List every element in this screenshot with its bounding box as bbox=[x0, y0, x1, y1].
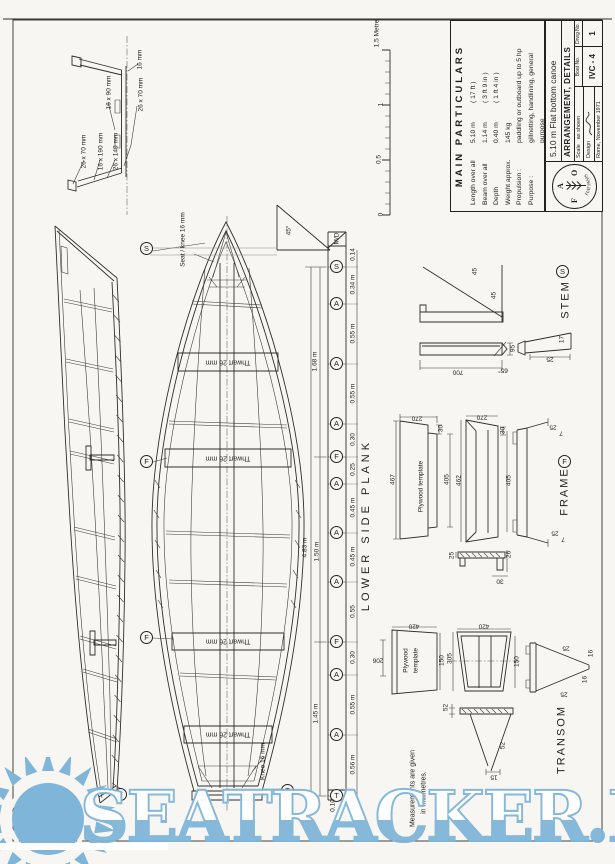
station-marker: A bbox=[330, 575, 343, 588]
drawing-sheet: 16 mm 26 x 70 mm 16 x 90 mm 26 x 70 mm 1… bbox=[0, 0, 615, 864]
table-row: Weight approx.145 kg bbox=[503, 27, 515, 205]
dim-label: 30 bbox=[499, 409, 508, 453]
station-marker: F bbox=[558, 455, 571, 468]
sheet-title: ARRANGEMENT, DETAILS bbox=[562, 21, 575, 161]
station-marker: A bbox=[330, 728, 343, 741]
angle-label: 45° bbox=[285, 209, 294, 253]
section-detail bbox=[68, 36, 138, 215]
dim-label: 26 x 140 mm bbox=[112, 130, 121, 174]
thwart-label: Thwart 26 mm bbox=[206, 455, 251, 462]
station-marker: F bbox=[140, 631, 153, 644]
table-row: Depth0.40 m( 1 ft 4 in ) bbox=[491, 27, 503, 205]
station-marker: S bbox=[556, 265, 569, 278]
spec-label: Length over all bbox=[468, 143, 480, 205]
drwg-no-cell: Drwg No. 1 bbox=[575, 21, 603, 47]
dim-label: 30 bbox=[437, 407, 446, 451]
dim-label: 26 bbox=[505, 533, 514, 577]
dim-label: 206 bbox=[373, 656, 384, 663]
boat-no-value: IVC - 4 bbox=[583, 47, 603, 86]
plywood-template-label: template bbox=[412, 639, 421, 683]
spec-alt: ( 3 ft 9 in ) bbox=[480, 27, 492, 103]
boat-no-cell: Boat No. IVC - 4 bbox=[575, 47, 603, 87]
transom-title: TRANSOM bbox=[558, 700, 567, 780]
place-date: Rome, November 1971 bbox=[595, 87, 603, 161]
main-particulars-title: MAIN PARTICULARS bbox=[454, 27, 465, 205]
dim-label: 16 x 90 mm bbox=[105, 71, 114, 115]
dim-label: 7 bbox=[561, 535, 565, 542]
dim-label: 26 x 70 mm bbox=[137, 73, 146, 117]
dim-label: 270 bbox=[477, 413, 488, 420]
dim-label: 7 bbox=[559, 429, 563, 436]
drwg-no-value: 1 bbox=[583, 21, 603, 46]
table-row: Length over all5.10 m( 17 ft ) bbox=[468, 27, 480, 205]
overall-dim-label: 1.50 m bbox=[313, 530, 322, 574]
dim-label: 30 bbox=[496, 577, 503, 584]
station-marker: A bbox=[330, 477, 343, 490]
dim-label: 467 bbox=[389, 458, 398, 502]
scale-tick-label: 0.5 bbox=[375, 138, 384, 182]
design-label: Design bbox=[584, 141, 594, 158]
lower-side-plank-title: LOWER SIDE PLANK bbox=[359, 415, 373, 635]
thwart-label: Thwart 26 mm bbox=[206, 638, 251, 645]
spec-label: Depth bbox=[491, 143, 503, 205]
dim-label: 0.45 m bbox=[349, 486, 358, 530]
scale-tick-label: 1.5 Metre bbox=[373, 12, 382, 56]
dim-label: 305 bbox=[446, 637, 455, 681]
thwart-label: Thwart 26 mm bbox=[206, 731, 251, 738]
dim-label: 0.55 m bbox=[349, 372, 358, 416]
md-label: M/D bbox=[333, 217, 342, 261]
fao-logo: F A O FIAT PANIS bbox=[552, 164, 597, 209]
spec-alt: ( 17 ft ) bbox=[468, 27, 480, 103]
scale-tick-label: 0 bbox=[377, 193, 386, 237]
main-particulars-table: MAIN PARTICULARS Length over all5.10 m( … bbox=[450, 20, 545, 212]
dim-label: 0.45 m bbox=[349, 535, 358, 579]
dim-label: 270 bbox=[412, 414, 423, 421]
boat-no-label: Boat No. bbox=[575, 47, 583, 86]
station-marker: F bbox=[330, 450, 343, 463]
units-note: Measurements are given bbox=[409, 744, 418, 834]
station-marker: F bbox=[330, 635, 343, 648]
dim-label: 25 bbox=[562, 644, 569, 651]
spec-value: 1.14 m bbox=[480, 103, 492, 143]
plywood-template-label: Plywood bbox=[402, 639, 411, 683]
dim-label: 26 x 70 mm bbox=[80, 130, 89, 174]
dim-label: 0.55 bbox=[349, 590, 358, 634]
scale-label: Scale bbox=[575, 144, 583, 158]
dim-label: 405 bbox=[443, 458, 452, 502]
dim-label: 25 bbox=[549, 423, 556, 430]
design-signature bbox=[584, 111, 594, 137]
dim-label: 0.34 m bbox=[349, 263, 358, 307]
drwg-no-label: Drwg No. bbox=[575, 21, 583, 46]
spec-label: Weight approx. bbox=[503, 143, 515, 205]
dim-label: 0.10 bbox=[329, 784, 338, 828]
title-block-left-column: Scaleas shown Design Rome, November 1971 bbox=[575, 87, 603, 161]
spec-alt: ( 1 ft 4 in ) bbox=[491, 27, 503, 103]
spec-label: Propulsion : bbox=[514, 143, 526, 205]
spec-alt bbox=[503, 27, 515, 103]
dim-label: 52 bbox=[442, 686, 451, 730]
plan-view bbox=[112, 216, 304, 812]
dim-label: 405 bbox=[505, 459, 514, 503]
knee-label: Knee 16 mm bbox=[259, 727, 268, 797]
table-row: Beam over all1.14 m( 3 ft 9 in ) bbox=[480, 27, 492, 205]
station-marker: F bbox=[140, 455, 153, 468]
dim-label: 25 bbox=[546, 355, 553, 362]
fao-motto: FIAT PANIS bbox=[582, 173, 591, 196]
dim-label: 0.55 m bbox=[349, 312, 358, 356]
title-block: F A O FIAT PANIS 5.10 m Flat bottom cano… bbox=[545, 20, 603, 212]
dim-label: 52 bbox=[499, 724, 508, 768]
dim-label: 420 bbox=[479, 622, 490, 629]
scale-tick-label: 1 bbox=[377, 83, 386, 127]
table-row: Propulsion :paddling or outboard up to 5… bbox=[514, 27, 526, 205]
station-marker: S bbox=[140, 242, 153, 255]
dim-label: 150 bbox=[513, 640, 522, 684]
dim-label: 25 bbox=[560, 690, 567, 697]
station-marker: T bbox=[114, 788, 127, 801]
station-marker: A bbox=[330, 668, 343, 681]
thwart-label: Thwart 26 mm bbox=[206, 359, 251, 366]
scale-bar-lines bbox=[382, 50, 390, 215]
plywood-template-label: Plywood template bbox=[417, 452, 426, 522]
station-marker: S bbox=[330, 260, 343, 273]
overall-dim-label: 1.45 m bbox=[312, 692, 321, 736]
spec-value: 0.40 m bbox=[491, 103, 503, 143]
dim-label: 45 bbox=[490, 274, 499, 318]
dim-label: 700 bbox=[453, 368, 464, 375]
spec-value: 5.10 m bbox=[468, 103, 480, 143]
dim-label: 0.55 m bbox=[349, 683, 358, 727]
dim-label: 16 bbox=[581, 658, 590, 702]
seat-knee-label: Seat / knee 16 mm bbox=[179, 205, 188, 275]
station-marker: A bbox=[330, 526, 343, 539]
spec-value: paddling or outboard up to 5 hp bbox=[514, 27, 526, 143]
overall-dim-label: 1.68 m bbox=[311, 340, 320, 384]
dim-label: 25 bbox=[551, 529, 558, 536]
svg-text:FIAT PANIS: FIAT PANIS bbox=[582, 173, 591, 196]
dim-label: 462 bbox=[455, 459, 464, 503]
dim-label: 16 x 190 mm bbox=[97, 130, 106, 174]
station-marker: A bbox=[330, 357, 343, 370]
overall-dim-label: 4.83 m bbox=[301, 526, 310, 570]
side-elevation bbox=[55, 226, 125, 803]
dim-label: 0.04 bbox=[349, 781, 358, 825]
plank-strip bbox=[150, 205, 358, 806]
fao-logo-cell: F A O FIAT PANIS bbox=[546, 161, 602, 211]
dim-label: 420 bbox=[409, 622, 420, 629]
dim-label: 0.30 bbox=[349, 636, 358, 680]
station-marker: A bbox=[330, 297, 343, 310]
scale-value: as shown bbox=[575, 116, 583, 139]
dim-label: 15 bbox=[490, 773, 497, 780]
wheat-icon: FIAT PANIS bbox=[553, 163, 598, 208]
dim-label: 95 bbox=[509, 327, 518, 371]
spec-value: 145 kg bbox=[503, 103, 515, 143]
station-marker: T bbox=[281, 784, 294, 797]
boat-title: 5.10 m Flat bottom canoe bbox=[546, 21, 562, 161]
station-marker: A bbox=[330, 417, 343, 430]
title-block-main: 5.10 m Flat bottom canoe ARRANGEMENT, DE… bbox=[546, 21, 602, 161]
dim-label: 25 bbox=[448, 534, 457, 578]
dim-label: 65° bbox=[498, 366, 508, 373]
spec-label: Beam over all bbox=[480, 143, 492, 205]
units-note: in millimetres. bbox=[420, 748, 429, 838]
dim-label: 45 bbox=[471, 250, 480, 294]
